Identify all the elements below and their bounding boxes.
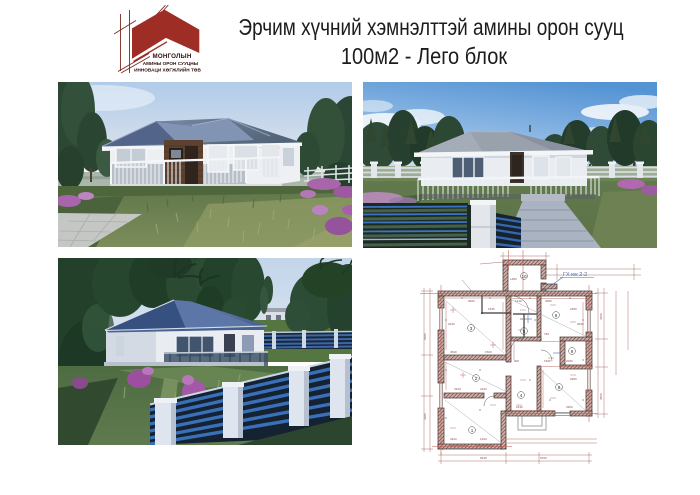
- svg-text:3340: 3340: [454, 387, 461, 391]
- svg-text:9: 9: [571, 349, 574, 354]
- svg-text:1500: 1500: [544, 359, 551, 363]
- svg-text:3860: 3860: [599, 393, 603, 400]
- svg-text:4343: 4343: [450, 437, 457, 441]
- svg-text:910: 910: [520, 317, 525, 321]
- svg-text:900: 900: [514, 359, 519, 363]
- svg-text:3300: 3300: [566, 405, 573, 409]
- svg-text:1210: 1210: [515, 299, 522, 303]
- svg-text:2120: 2120: [480, 387, 487, 391]
- svg-text:МОНГОЛЫН: МОНГОЛЫН: [153, 53, 192, 60]
- svg-text:4: 4: [520, 393, 523, 398]
- svg-text:1: 1: [471, 428, 474, 433]
- svg-text:1480: 1480: [510, 277, 517, 281]
- svg-text:1525: 1525: [488, 307, 495, 311]
- svg-text:2430: 2430: [516, 405, 523, 409]
- svg-text:2: 2: [475, 376, 478, 381]
- svg-text:2480: 2480: [570, 307, 577, 311]
- svg-text:1500: 1500: [485, 350, 492, 354]
- svg-text:6: 6: [555, 313, 558, 318]
- svg-text:2220: 2220: [448, 322, 455, 326]
- svg-text:АМИНЫ ОРОН СУУЦНЫ: АМИНЫ ОРОН СУУЦНЫ: [143, 61, 199, 66]
- svg-text:3000: 3000: [468, 299, 475, 303]
- svg-text:4540: 4540: [450, 350, 457, 354]
- svg-text:3280: 3280: [545, 299, 552, 303]
- svg-text:8: 8: [558, 385, 561, 390]
- svg-text:5400: 5400: [423, 333, 427, 340]
- svg-text:10: 10: [521, 274, 527, 279]
- svg-text:4400: 4400: [599, 313, 603, 320]
- svg-text:760: 760: [544, 332, 549, 336]
- svg-text:3200: 3200: [423, 413, 427, 420]
- svg-text:5150: 5150: [540, 456, 547, 460]
- svg-text:6545: 6545: [480, 456, 487, 460]
- svg-text:2000: 2000: [566, 359, 573, 363]
- svg-text:2900: 2900: [570, 377, 577, 381]
- svg-text:ИННОВАЦИ ХӨГЖЛИЙН ТӨВ: ИННОВАЦИ ХӨГЖЛИЙН ТӨВ: [134, 66, 201, 73]
- svg-text:3: 3: [470, 326, 473, 331]
- svg-text:1200: 1200: [480, 437, 487, 441]
- svg-text:ГХ юк 2-2: ГХ юк 2-2: [563, 272, 587, 278]
- svg-text:5: 5: [523, 329, 526, 334]
